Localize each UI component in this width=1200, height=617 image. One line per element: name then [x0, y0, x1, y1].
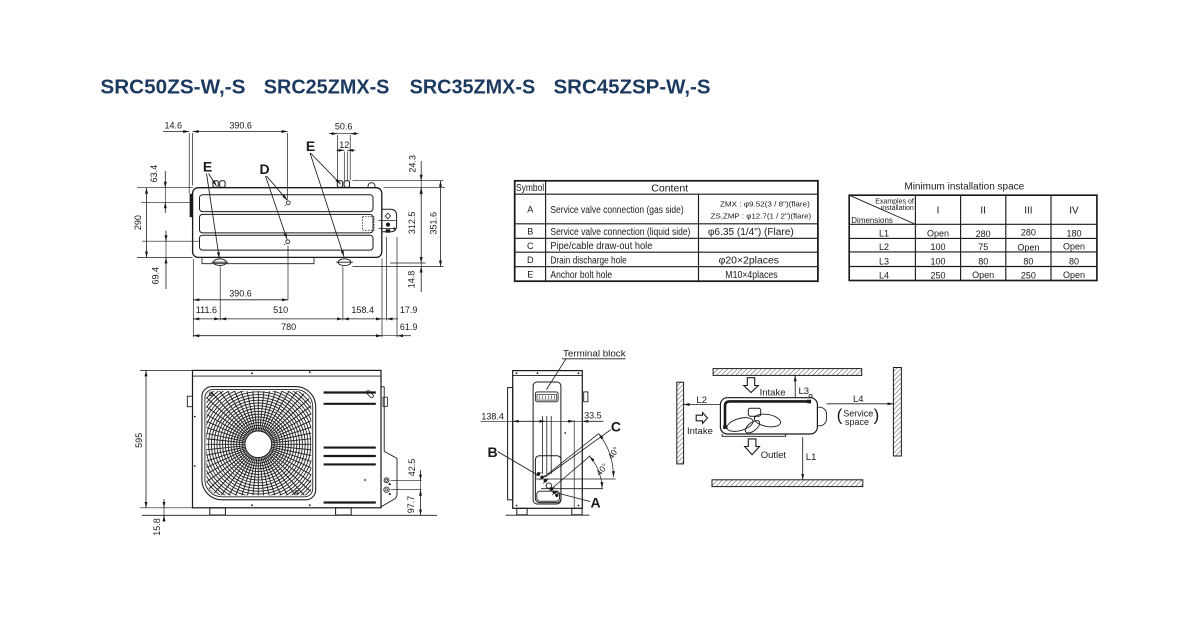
- svg-text:D: D: [259, 161, 269, 177]
- svg-text:Symbol: Symbol: [516, 183, 544, 194]
- svg-text:Terminal block: Terminal block: [563, 349, 626, 359]
- svg-text:111.6: 111.6: [196, 305, 217, 315]
- svg-text:250: 250: [930, 271, 945, 281]
- svg-text:312.5: 312.5: [407, 212, 417, 235]
- svg-text:14.8: 14.8: [407, 271, 417, 289]
- svg-text:): ): [874, 406, 880, 425]
- svg-text:L1: L1: [806, 452, 817, 463]
- svg-text:B: B: [488, 444, 498, 460]
- svg-text:351.6: 351.6: [428, 212, 438, 235]
- svg-text:80: 80: [978, 257, 988, 267]
- svg-text:C: C: [527, 241, 534, 251]
- svg-text:69.4: 69.4: [151, 267, 161, 285]
- svg-text:Minimum installation space: Minimum installation space: [904, 180, 1024, 192]
- svg-text:Anchor bolt hole: Anchor bolt hole: [550, 270, 612, 281]
- svg-text:C: C: [611, 419, 621, 435]
- svg-text:SRC50ZS-W,-S: SRC50ZS-W,-S: [100, 75, 245, 98]
- svg-text:280: 280: [1021, 227, 1036, 237]
- svg-text:42.5: 42.5: [407, 459, 417, 477]
- svg-text:φ6.35 (1/4") (Flare): φ6.35 (1/4") (Flare): [708, 227, 794, 238]
- svg-text:14.6: 14.6: [165, 121, 183, 131]
- svg-text:250: 250: [1021, 271, 1036, 281]
- svg-text:Service valve connection (gas: Service valve connection (gas side): [550, 205, 683, 216]
- svg-text:15.8: 15.8: [152, 518, 162, 536]
- svg-text:33.5: 33.5: [584, 411, 602, 421]
- svg-text:97.7: 97.7: [406, 496, 416, 514]
- svg-text:290: 290: [133, 215, 143, 230]
- svg-text:L3: L3: [879, 257, 889, 267]
- svg-text:L4: L4: [879, 271, 889, 281]
- svg-text:Outlet: Outlet: [761, 450, 787, 461]
- svg-text:E: E: [306, 138, 315, 154]
- svg-text:280: 280: [976, 229, 991, 239]
- svg-text:φ20×2places: φ20×2places: [719, 255, 779, 266]
- svg-text:Service valve connection (liqu: Service valve connection (liquid side): [550, 227, 690, 238]
- svg-text:80: 80: [1023, 257, 1033, 267]
- svg-text:L4: L4: [853, 394, 864, 405]
- svg-text:L3: L3: [799, 386, 810, 397]
- svg-text:80: 80: [1069, 257, 1079, 267]
- svg-text:ZMX : φ9.52(3 / 8")(flare): ZMX : φ9.52(3 / 8")(flare): [720, 200, 810, 209]
- svg-text:Open: Open: [1017, 243, 1039, 253]
- svg-text:SRC35ZMX-S: SRC35ZMX-S: [410, 75, 536, 98]
- svg-text:75: 75: [978, 242, 988, 252]
- svg-text:M10×4places: M10×4places: [725, 270, 777, 281]
- svg-text:180: 180: [1066, 229, 1081, 239]
- svg-text:A: A: [527, 205, 533, 215]
- svg-text:ZS,ZMP : φ12.7(1 / 2")(flare): ZS,ZMP : φ12.7(1 / 2")(flare): [711, 212, 812, 221]
- svg-text:installation: installation: [881, 205, 914, 212]
- svg-text:III: III: [1024, 206, 1032, 217]
- svg-text:SRC25ZMX-S: SRC25ZMX-S: [264, 75, 390, 98]
- svg-text:Open: Open: [972, 270, 994, 280]
- svg-text:D: D: [527, 255, 534, 265]
- svg-text:390.6: 390.6: [229, 289, 252, 299]
- svg-text:A: A: [590, 494, 600, 510]
- svg-text:40°: 40°: [594, 461, 610, 477]
- svg-text:595: 595: [134, 433, 144, 448]
- svg-text:158.4: 158.4: [351, 305, 374, 315]
- svg-text:L1: L1: [879, 229, 889, 239]
- svg-text:Intake: Intake: [760, 387, 786, 398]
- svg-text:510: 510: [273, 305, 288, 315]
- svg-text:IV: IV: [1069, 206, 1079, 217]
- svg-text:L2: L2: [879, 242, 889, 252]
- svg-text:12: 12: [339, 140, 349, 150]
- svg-text:Dimensions: Dimensions: [851, 215, 893, 225]
- svg-text:space: space: [845, 417, 869, 427]
- svg-text:138.4: 138.4: [481, 411, 504, 421]
- svg-text:Pipe/cable draw-out hole: Pipe/cable draw-out hole: [550, 241, 652, 252]
- svg-text:Content: Content: [651, 183, 688, 195]
- svg-text:SRC45ZSP-W,-S: SRC45ZSP-W,-S: [554, 75, 711, 98]
- svg-text:(: (: [837, 406, 843, 425]
- svg-text:50.6: 50.6: [335, 121, 353, 131]
- svg-text:Intake: Intake: [687, 426, 713, 437]
- svg-text:40°: 40°: [606, 445, 622, 461]
- svg-text:I: I: [937, 206, 940, 217]
- svg-text:E: E: [527, 270, 533, 280]
- svg-text:390.6: 390.6: [229, 121, 252, 131]
- svg-text:61.9: 61.9: [400, 322, 418, 332]
- svg-text:II: II: [980, 206, 986, 217]
- svg-text:Open: Open: [927, 229, 949, 239]
- svg-text:Open: Open: [1063, 242, 1085, 252]
- svg-text:Drain discharge hole: Drain discharge hole: [550, 255, 627, 266]
- svg-text:780: 780: [281, 322, 296, 332]
- svg-text:100: 100: [930, 257, 945, 267]
- svg-text:E: E: [203, 159, 212, 175]
- svg-text:17.9: 17.9: [400, 305, 418, 315]
- svg-text:Open: Open: [1063, 270, 1085, 280]
- svg-text:24.3: 24.3: [408, 155, 418, 173]
- svg-text:B: B: [527, 227, 533, 237]
- svg-text:100: 100: [930, 242, 945, 252]
- svg-text:63.4: 63.4: [149, 165, 159, 183]
